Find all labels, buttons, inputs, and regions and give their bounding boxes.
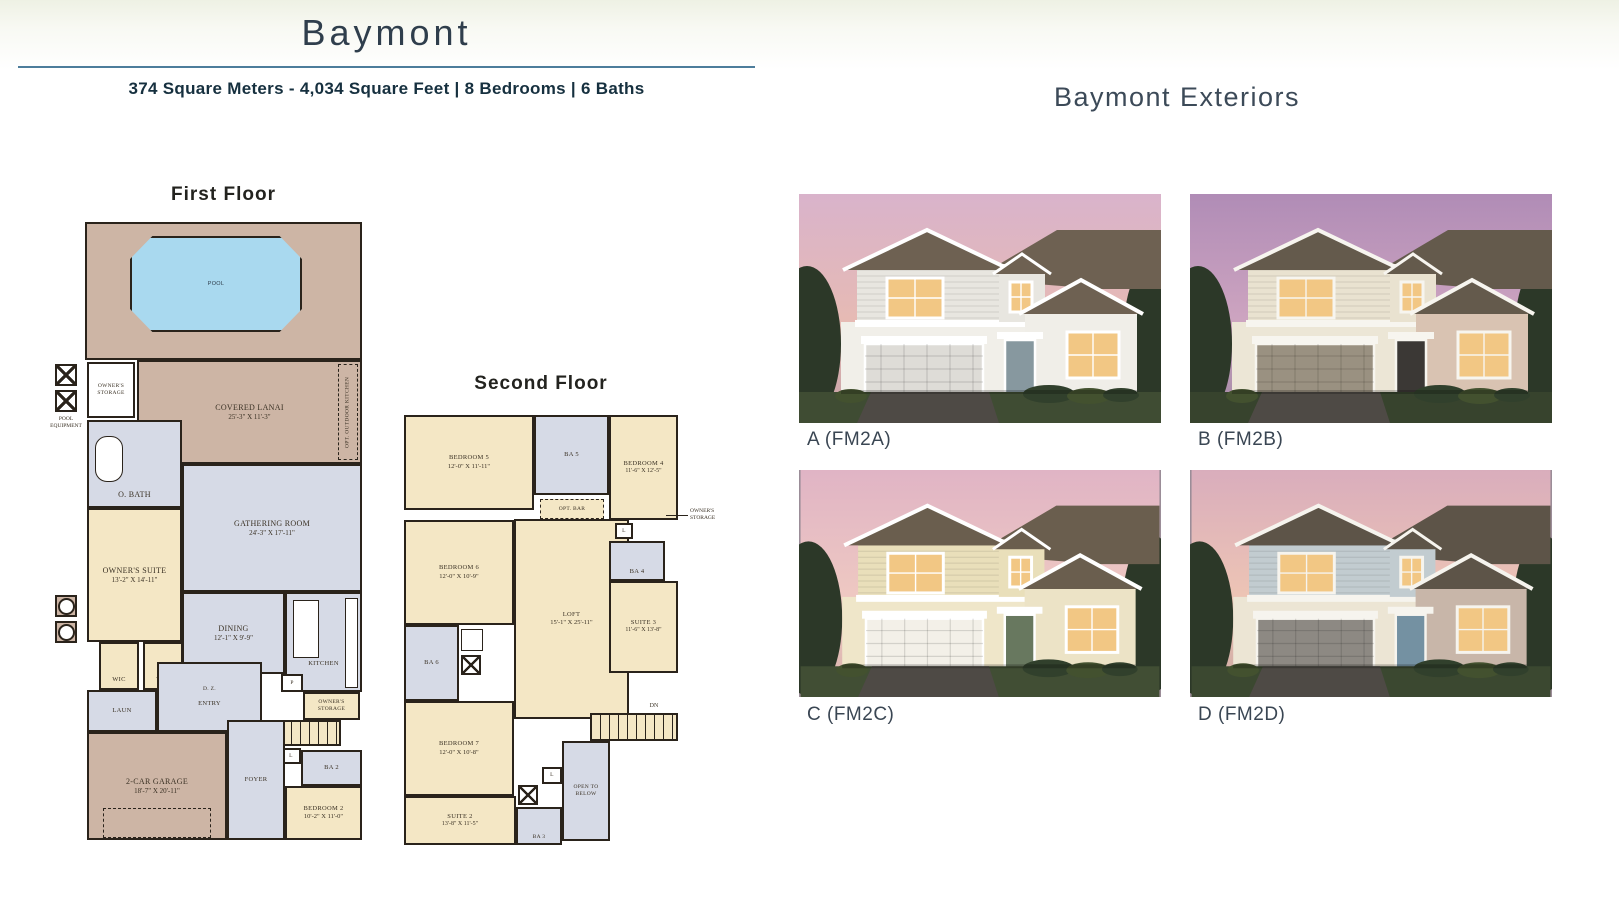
bathtub-icon <box>95 436 123 482</box>
room-bedroom7: BEDROOM 7 12'-0" X 10'-8" <box>404 701 514 796</box>
room-open-to-below: OPEN TO BELOW <box>562 741 610 841</box>
room-foyer: FOYER <box>227 720 285 840</box>
room-suite2: SUITE 2 13'-8" X 11'-5" <box>404 796 516 845</box>
first-floor-plan: POOL COVERED LANAI 25'-3" X 11'-3" OPT. … <box>85 222 362 843</box>
pool-label: POOL <box>208 281 224 287</box>
exterior-label-b: B (FM2B) <box>1198 429 1283 451</box>
exterior-photo-d <box>1190 470 1552 697</box>
owners-storage-leader <box>666 515 688 516</box>
stairs-dn-label: DN <box>644 703 664 710</box>
exterior-label-a: A (FM2A) <box>807 429 891 451</box>
room-ba3: BA 3 <box>516 807 562 845</box>
room-ba2: BA 2 <box>301 750 362 786</box>
room-pool: POOL <box>130 236 302 332</box>
stairs-dn <box>590 713 678 741</box>
pool-equipment-icon <box>55 364 77 386</box>
room-bedroom2: BEDROOM 2 10'-2" X 11'-0" <box>285 786 362 840</box>
ba3-closet-icon <box>518 785 538 805</box>
room-pantry: P <box>281 674 303 692</box>
room-ba5: BA 5 <box>534 415 609 495</box>
exterior-label-d: D (FM2D) <box>1198 704 1285 726</box>
washer-icon <box>461 629 483 651</box>
pool-equipment-icon <box>55 390 77 412</box>
kitchen-counter-icon <box>345 598 358 688</box>
page-subtitle: 374 Square Meters - 4,034 Square Feet | … <box>18 79 755 99</box>
room-suite3: SUITE 3 11'-6" X 13'-8" <box>609 581 678 673</box>
exteriors-heading: Baymont Exteriors <box>800 82 1554 113</box>
room-linen-ba4: L <box>615 523 633 539</box>
room-linen2: L <box>542 767 562 784</box>
house-rendering-d <box>1190 470 1552 697</box>
room-wic-left: WIC <box>99 642 139 690</box>
room-laundry: LAUN <box>87 690 157 732</box>
room-opt-outdoor-kitchen: OPT. OUTDOOR KITCHEN <box>338 364 358 460</box>
owners-storage-annotation: OWNER'S STORAGE <box>690 508 730 521</box>
room-owners-storage-1: OWNER'S STORAGE <box>87 362 135 418</box>
exterior-photo-c <box>799 470 1161 697</box>
page-title: Baymont <box>18 12 755 54</box>
room-ba6: BA 6 <box>404 625 459 701</box>
room-bedroom4: BEDROOM 4 11'-6" X 12'-5" <box>609 415 678 520</box>
room-ba4: BA 4 <box>609 541 665 581</box>
second-floor-heading: Second Floor <box>404 373 678 395</box>
room-owners-storage-2: OWNER'S STORAGE <box>303 692 360 720</box>
exterior-photo-a <box>799 194 1161 423</box>
second-floor-plan: BEDROOM 5 12'-0" X 11'-11" BA 5 BEDROOM … <box>404 415 678 845</box>
exterior-photo-b <box>1190 194 1552 423</box>
first-floor-heading: First Floor <box>85 184 362 206</box>
ac-unit-icon <box>55 595 77 617</box>
room-gathering: GATHERING ROOM 24'-3" X 17'-11" <box>182 464 362 592</box>
exterior-label-c: C (FM2C) <box>807 704 894 726</box>
garage-door-icon <box>103 808 211 838</box>
ac-unit-icon <box>55 621 77 643</box>
title-divider <box>18 66 755 68</box>
room-owners-suite: OWNER'S SUITE 13'-2" X 14'-11" <box>87 508 182 642</box>
house-rendering-c <box>799 470 1161 697</box>
house-rendering-b <box>1190 194 1552 423</box>
pool-equipment-label: POOL EQUIPMENT <box>43 416 89 429</box>
room-bedroom6: BEDROOM 6 12'-0" X 10'-9" <box>404 520 514 625</box>
kitchen-island-icon <box>293 600 319 658</box>
room-opt-bar: OPT. BAR <box>540 499 604 519</box>
room-bedroom5: BEDROOM 5 12'-0" X 11'-11" <box>404 415 534 510</box>
house-rendering-a <box>799 194 1161 423</box>
dryer-icon <box>461 655 481 675</box>
